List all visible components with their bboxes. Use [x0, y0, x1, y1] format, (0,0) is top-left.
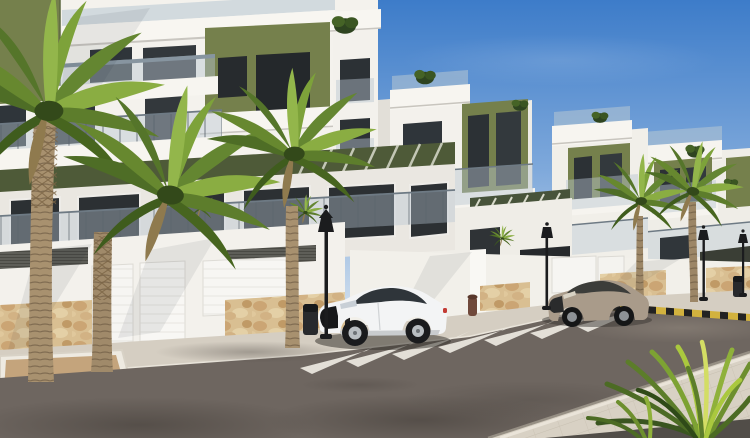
fire-hydrant — [468, 295, 478, 317]
trash-bin-1 — [303, 304, 318, 335]
stone-base — [480, 282, 530, 311]
render-scene — [0, 0, 750, 438]
taillight — [443, 308, 447, 313]
